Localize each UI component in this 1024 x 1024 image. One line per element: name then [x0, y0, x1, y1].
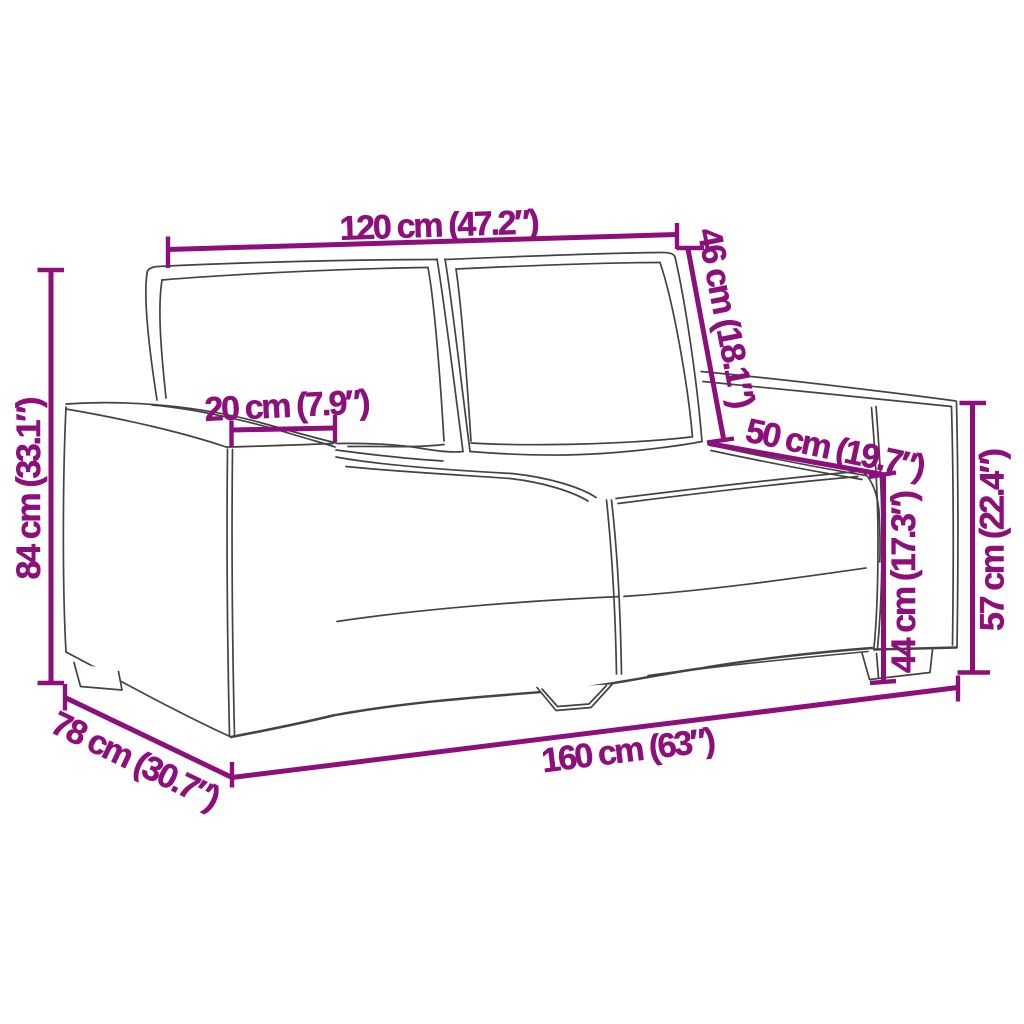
- svg-text:57 cm (22.4″): 57 cm (22.4″): [974, 448, 1012, 631]
- svg-text:84 cm (33.1″): 84 cm (33.1″): [10, 397, 48, 580]
- svg-text:120 cm (47.2″): 120 cm (47.2″): [339, 203, 540, 248]
- svg-text:20 cm (7.9″): 20 cm (7.9″): [204, 383, 372, 429]
- svg-text:44 cm (17.3″): 44 cm (17.3″): [885, 490, 923, 673]
